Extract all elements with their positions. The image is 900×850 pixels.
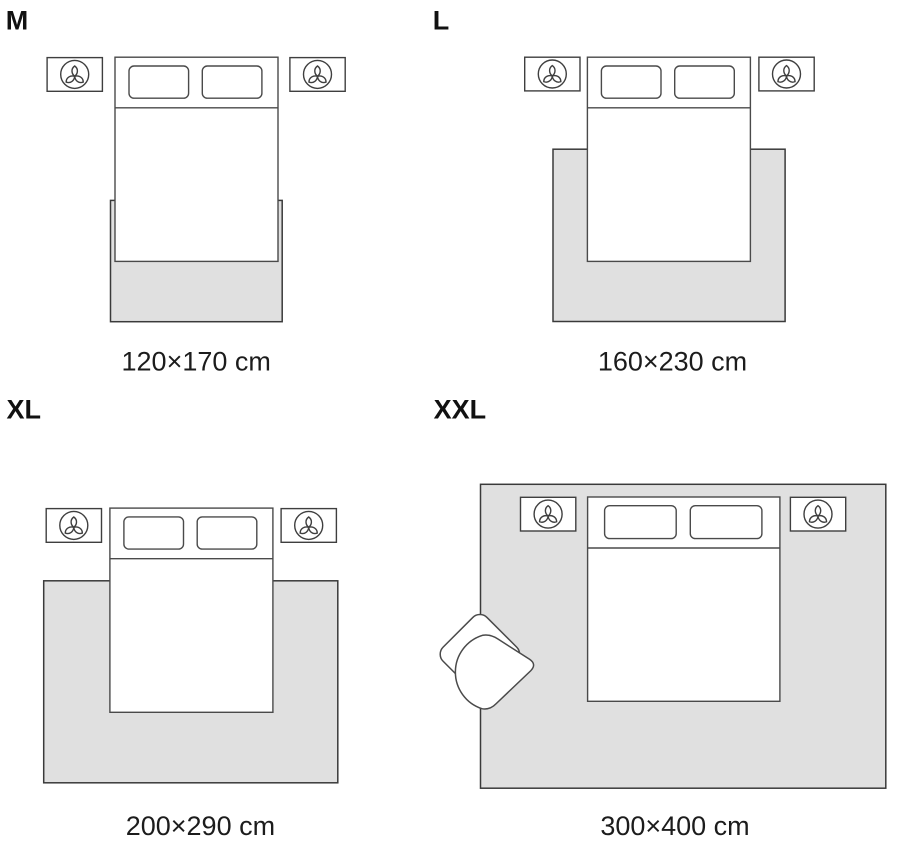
svg-text:XL: XL <box>7 395 42 425</box>
svg-text:160×230 cm: 160×230 cm <box>598 347 747 377</box>
svg-text:XXL: XXL <box>434 395 487 425</box>
svg-text:300×400 cm: 300×400 cm <box>600 811 749 841</box>
svg-text:120×170 cm: 120×170 cm <box>122 347 271 377</box>
svg-text:L: L <box>433 5 450 35</box>
svg-text:M: M <box>6 5 29 35</box>
svg-text:200×290 cm: 200×290 cm <box>126 811 275 841</box>
